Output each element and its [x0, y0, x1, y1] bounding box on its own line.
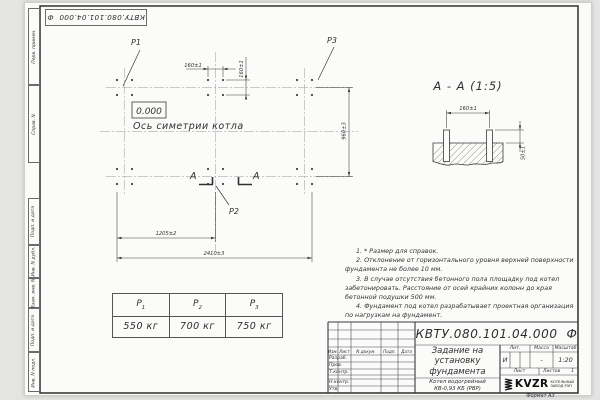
mass-value: - — [530, 352, 553, 368]
company-subtitle-line: ЗАВОД РЭП — [550, 384, 574, 388]
anchor-bolt-points — [116, 79, 313, 185]
notes-block: 1. * Размер для справок. 2. Отклонение о… — [345, 247, 578, 321]
dim-half-length: 1205±2 — [156, 231, 177, 237]
side-stamp-inv-podl: Инв. N подл. — [28, 352, 40, 392]
load-point-p3-label: P3 — [327, 36, 337, 45]
row-label-razrab: Разраб. — [329, 355, 357, 362]
load-p1-header: P1 — [113, 294, 170, 317]
load-p2-header: P2 — [169, 294, 226, 317]
load-table-header-row: P1 P2 P3 — [113, 294, 283, 317]
scanned-drawing-screenshot: P1 P3 P2 0.000 Ось симетрии котла — [0, 0, 600, 400]
dim-section-bolt-spacing: 160±1 — [459, 106, 477, 112]
side-stamp-label: Подп. и дата — [32, 206, 37, 237]
side-stamp-label: Справ. N — [32, 113, 37, 134]
load-point-p2-label: P2 — [229, 207, 239, 216]
side-stamp-label: Перв. примен. — [32, 29, 37, 64]
company-subtitle: КОТЕЛЬНЫЙ ЗАВОД РЭП — [550, 380, 574, 388]
lit-value: И — [500, 352, 510, 368]
col-header-date: Дата — [398, 347, 415, 355]
dim-bolt-spacing-y: 160±1 — [239, 60, 245, 78]
row-label-prov: Пров. — [329, 362, 357, 369]
row-label-utv: Утв. — [329, 386, 357, 393]
side-stamp-label: Инв. N подл. — [32, 357, 37, 387]
sheet-label: Лист — [500, 368, 539, 375]
side-stamp-sprav-n: Справ. N — [28, 85, 40, 163]
scale-header: Масштаб — [553, 345, 578, 352]
dim-bolt-spacing-x: 160±1 — [184, 63, 202, 69]
col-header-doc: N докум. — [351, 347, 381, 355]
scale-value: 1:20 — [553, 352, 578, 368]
row-label-nkontr: Н.контр. — [329, 379, 357, 386]
load-p3-header: P3 — [226, 294, 283, 317]
side-stamp-inv-dubl: Инв. N дубл. — [28, 245, 40, 278]
col-header-izm: Изм. — [328, 347, 338, 355]
section-dimension-lines — [447, 110, 525, 152]
load-table: P1 P2 P3 550 кг 700 кг 750 кг — [112, 293, 283, 338]
lit-header: Лит. — [500, 345, 530, 352]
dim-full-length: 2410±3 — [204, 251, 225, 257]
row-label-tkontr: Т.контр. — [329, 369, 357, 375]
load-table-value-row: 550 кг 700 кг 750 кг — [113, 316, 283, 337]
side-stamp-perv-primen: Перв. примен. — [28, 8, 40, 85]
section-letter-right: А — [252, 171, 260, 182]
sheets-label: Листов — [543, 369, 560, 374]
drawing-title-line: Задание на — [432, 346, 484, 357]
note-2: 2. Отклонение от горизонтального уровня … — [345, 256, 578, 274]
note-3: 3. В случае отсутствия бетонного пола пл… — [345, 275, 578, 303]
product-name-line: Котел водогрейный — [429, 379, 486, 386]
drawing-title-line: фундамента — [429, 367, 485, 378]
anchor-bolt-left — [444, 130, 450, 162]
sheets-value: 1 — [571, 369, 574, 374]
flipped-doc-number: КВТУ.080.101.04.000 Ф — [47, 13, 145, 22]
sheets-cell: Листов 1 — [539, 368, 578, 375]
note-1: 1. * Размер для справок. — [345, 247, 578, 256]
section-view: А - А (1:5) 160±1 50±1 — [408, 79, 535, 180]
boiler-axis-label: Ось симетрии котла — [133, 121, 244, 132]
col-header-list: Лист — [338, 347, 351, 355]
section-cut-marks — [199, 177, 252, 185]
load-point-p1-label: P1 — [131, 38, 141, 47]
dimension-arrows — [117, 68, 350, 259]
load-p2-value: 700 кг — [169, 316, 226, 337]
plan-view: P1 P3 P2 0.000 Ось симетрии котла — [100, 36, 358, 262]
company-name: KVZR — [515, 378, 549, 390]
format-note: Формат А3 — [503, 393, 578, 399]
doc-number: КВТУ.080.101.04.000 Ф — [415, 322, 578, 345]
section-dimension-arrows — [447, 112, 522, 148]
drawing-title: Задание на установку фундамента — [415, 345, 500, 378]
col-header-sign: Подп. — [381, 347, 398, 355]
flipped-doc-number-box: КВТУ.080.101.04.000 Ф — [45, 9, 147, 26]
company-logo: KVZR КОТЕЛЬНЫЙ ЗАВОД РЭП — [500, 375, 578, 393]
product-name-line: КВ-0,93 КБ (РВР) — [434, 386, 481, 393]
side-stamp-label: Подп. и дата — [32, 314, 37, 345]
side-stamp-label: Инв. N дубл. — [32, 246, 37, 276]
load-p3-value: 750 кг — [226, 316, 283, 337]
side-stamp-podp-data-2: Подп. и дата — [28, 308, 40, 352]
side-stamp-label: Взам. инв. N — [32, 278, 37, 308]
centerlines — [100, 52, 358, 252]
kvzr-spring-icon — [504, 378, 513, 391]
note-4: 4. Фундамент под котел разрабатывает про… — [345, 302, 578, 320]
dim-row-spacing: 960±3 — [342, 122, 348, 140]
section-title: А - А (1:5) — [432, 79, 502, 93]
load-p1-value: 550 кг — [113, 316, 170, 337]
mass-header: Масса — [530, 345, 553, 352]
anchor-bolt-right — [487, 130, 493, 162]
section-letter-left: А — [189, 171, 197, 182]
drawing-title-line: установку — [435, 356, 481, 367]
dim-bolt-protrusion: 50±1 — [521, 146, 527, 160]
elevation-mark: 0.000 — [136, 107, 162, 117]
product-name: Котел водогрейный КВ-0,93 КБ (РВР) — [415, 378, 500, 393]
side-stamp-podp-data-1: Подп. и дата — [28, 198, 40, 245]
side-stamp-vzam-inv: Взам. инв. N — [28, 278, 40, 308]
concrete-hatch — [408, 125, 535, 180]
